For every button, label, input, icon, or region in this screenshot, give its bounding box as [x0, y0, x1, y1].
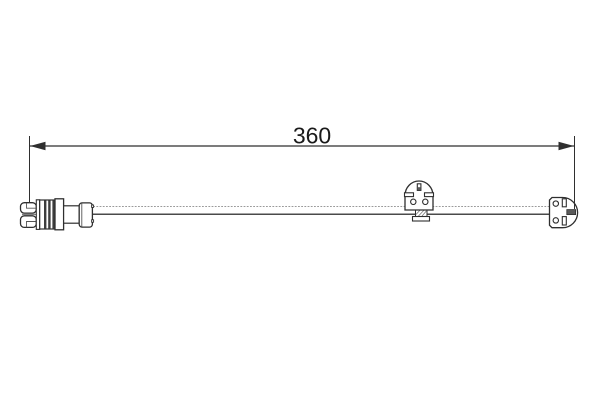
- end-clip-hole-bottom: [553, 218, 558, 223]
- sensor-cable: [90, 207, 550, 215]
- connector-plug-icon: [21, 199, 94, 230]
- connector-barrel: [64, 206, 80, 223]
- dimension-label: 360: [293, 123, 331, 149]
- end-clip-hole-top: [553, 201, 558, 206]
- sensor-slot-top-fill: [418, 187, 421, 190]
- sensor-hole-left: [411, 199, 416, 204]
- technical-drawing: 360: [0, 0, 600, 400]
- connector-cable-boot: [79, 203, 92, 227]
- sensor-foot: [413, 217, 430, 222]
- sensor-slot-left: [405, 193, 414, 197]
- part-diagram: 360: [0, 0, 600, 400]
- end-clip-slot-top: [562, 199, 566, 207]
- sensor-hole-right: [423, 199, 428, 204]
- connector-flange: [55, 199, 64, 230]
- end-clip-slot-bottom: [562, 217, 566, 225]
- boot-tab-top: [92, 205, 94, 207]
- sensor-slot-right: [425, 193, 434, 197]
- wear-sensor-end-icon: [550, 198, 578, 228]
- end-clip-center-slot: [567, 210, 576, 215]
- wear-sensor-clip-icon: [405, 181, 434, 221]
- dimension-arrow-left: [30, 142, 46, 150]
- drawing-root: 360: [21, 123, 578, 230]
- boot-tab-bottom: [92, 220, 94, 222]
- dimension-annotation: 360: [30, 123, 575, 210]
- connector-ribs: [44, 201, 55, 229]
- dimension-arrow-right: [559, 142, 575, 150]
